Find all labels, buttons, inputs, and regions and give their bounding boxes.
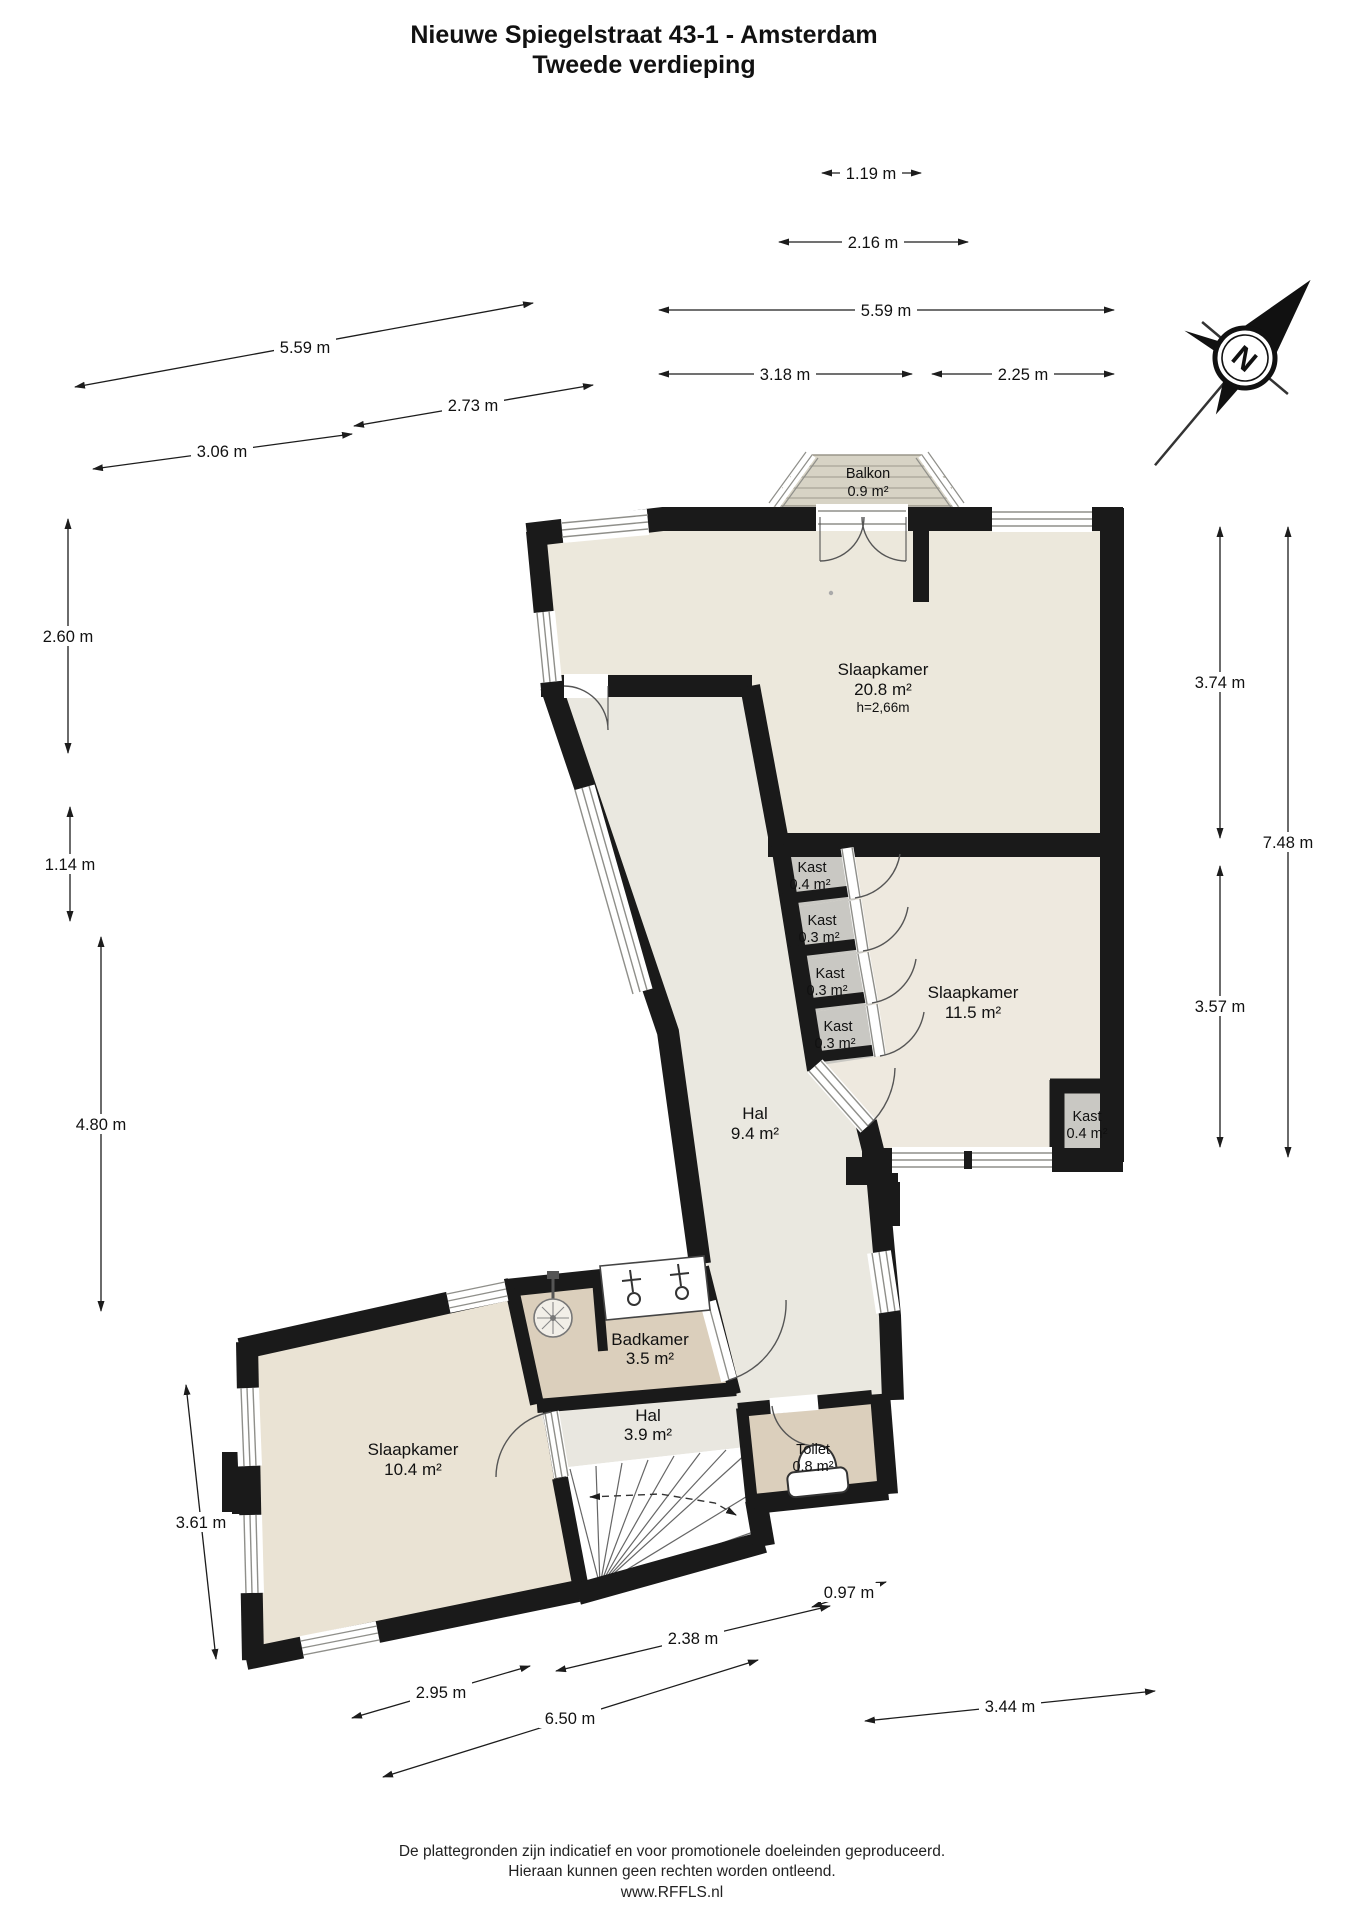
label-kast3-name: Kast — [815, 966, 844, 982]
washbasin-icon — [600, 1256, 710, 1320]
dim-right-2: 3.57 m — [1195, 998, 1245, 1016]
label-slaapkamer-10-4-area: 10.4 m² — [384, 1460, 442, 1479]
floorplan-page: Nieuwe Spiegelstraat 43-1 - Amsterdam Tw… — [0, 0, 1358, 1920]
dim-bottom-4: 3.44 m — [985, 1698, 1035, 1716]
label-toilet-area: 0.8 m² — [792, 1459, 833, 1475]
label-slaapkamer-11-5-name: Slaapkamer — [928, 983, 1019, 1002]
dim-top-2: 5.59 m — [861, 302, 911, 320]
dim-upper-left-0: 5.59 m — [280, 339, 330, 357]
dim-bottom-1: 2.38 m — [668, 1630, 718, 1648]
label-balkon-name: Balkon — [846, 466, 890, 482]
footer-disclaimer: De plattegronden zijn indicatief en voor… — [0, 1842, 1344, 1903]
dim-right-0: 3.74 m — [1195, 674, 1245, 692]
dim-bottom-2: 2.95 m — [416, 1684, 466, 1702]
label-slaapkamer-20-8-area: 20.8 m² — [854, 680, 912, 699]
footer-line-1: De plattegronden zijn indicatief en voor… — [0, 1842, 1344, 1862]
label-slaapkamer-10-4-name: Slaapkamer — [368, 1440, 459, 1459]
label-toilet-name: Toilet — [796, 1442, 830, 1458]
dim-top-4: 2.25 m — [998, 366, 1048, 384]
label-kast1-area: 0.4 m² — [789, 877, 830, 893]
dim-bottom-3: 6.50 m — [545, 1710, 595, 1728]
label-badkamer-name: Badkamer — [611, 1330, 689, 1349]
label-kast4-area: 0.3 m² — [814, 1036, 855, 1052]
label-hal-3-9-area: 3.9 m² — [624, 1425, 673, 1444]
label-badkamer-area: 3.5 m² — [626, 1349, 675, 1368]
label-kast2-name: Kast — [807, 913, 836, 929]
dim-left-0: 2.60 m — [43, 628, 93, 646]
dim-right-1: 7.48 m — [1263, 834, 1313, 852]
label-kast1-name: Kast — [797, 860, 826, 876]
compass-icon: N — [1106, 239, 1353, 502]
dim-bottom-0: 0.97 m — [824, 1584, 874, 1602]
label-slaapkamer-11-5-area: 11.5 m² — [945, 1003, 1002, 1022]
footer-line-3: www.RFFLS.nl — [0, 1883, 1344, 1903]
dim-top-1: 2.16 m — [848, 234, 898, 252]
floor-plan: Balkon 0.9 m² Slaapkamer 20.8 m² h=2,66m… — [0, 0, 1358, 1920]
label-kast4-name: Kast — [823, 1019, 852, 1035]
ceiling-point — [829, 591, 833, 595]
dim-upper-left-1: 2.73 m — [448, 397, 498, 415]
label-hal-9-4-area: 9.4 m² — [731, 1124, 780, 1143]
label-hal-3-9-name: Hal — [635, 1406, 661, 1425]
label-slaapkamer-20-8-name: Slaapkamer — [838, 660, 929, 679]
label-slaapkamer-20-8-height: h=2,66m — [857, 700, 910, 715]
label-kast3-area: 0.3 m² — [806, 983, 847, 999]
dim-left-2: 4.80 m — [76, 1116, 126, 1134]
label-balkon-area: 0.9 m² — [847, 484, 888, 500]
dim-upper-left-2: 3.06 m — [197, 443, 247, 461]
label-hal-9-4-name: Hal — [742, 1104, 768, 1123]
label-kast5-name: Kast — [1072, 1109, 1101, 1125]
label-kast5-area: 0.4 m² — [1066, 1126, 1107, 1142]
dim-top-3: 3.18 m — [760, 366, 810, 384]
label-kast2-area: 0.3 m² — [798, 930, 839, 946]
footer-line-2: Hieraan kunnen geen rechten worden ontle… — [0, 1862, 1344, 1882]
dim-top-0: 1.19 m — [846, 165, 896, 183]
dim-left-1: 1.14 m — [45, 856, 95, 874]
dim-left-3: 3.61 m — [176, 1514, 226, 1532]
